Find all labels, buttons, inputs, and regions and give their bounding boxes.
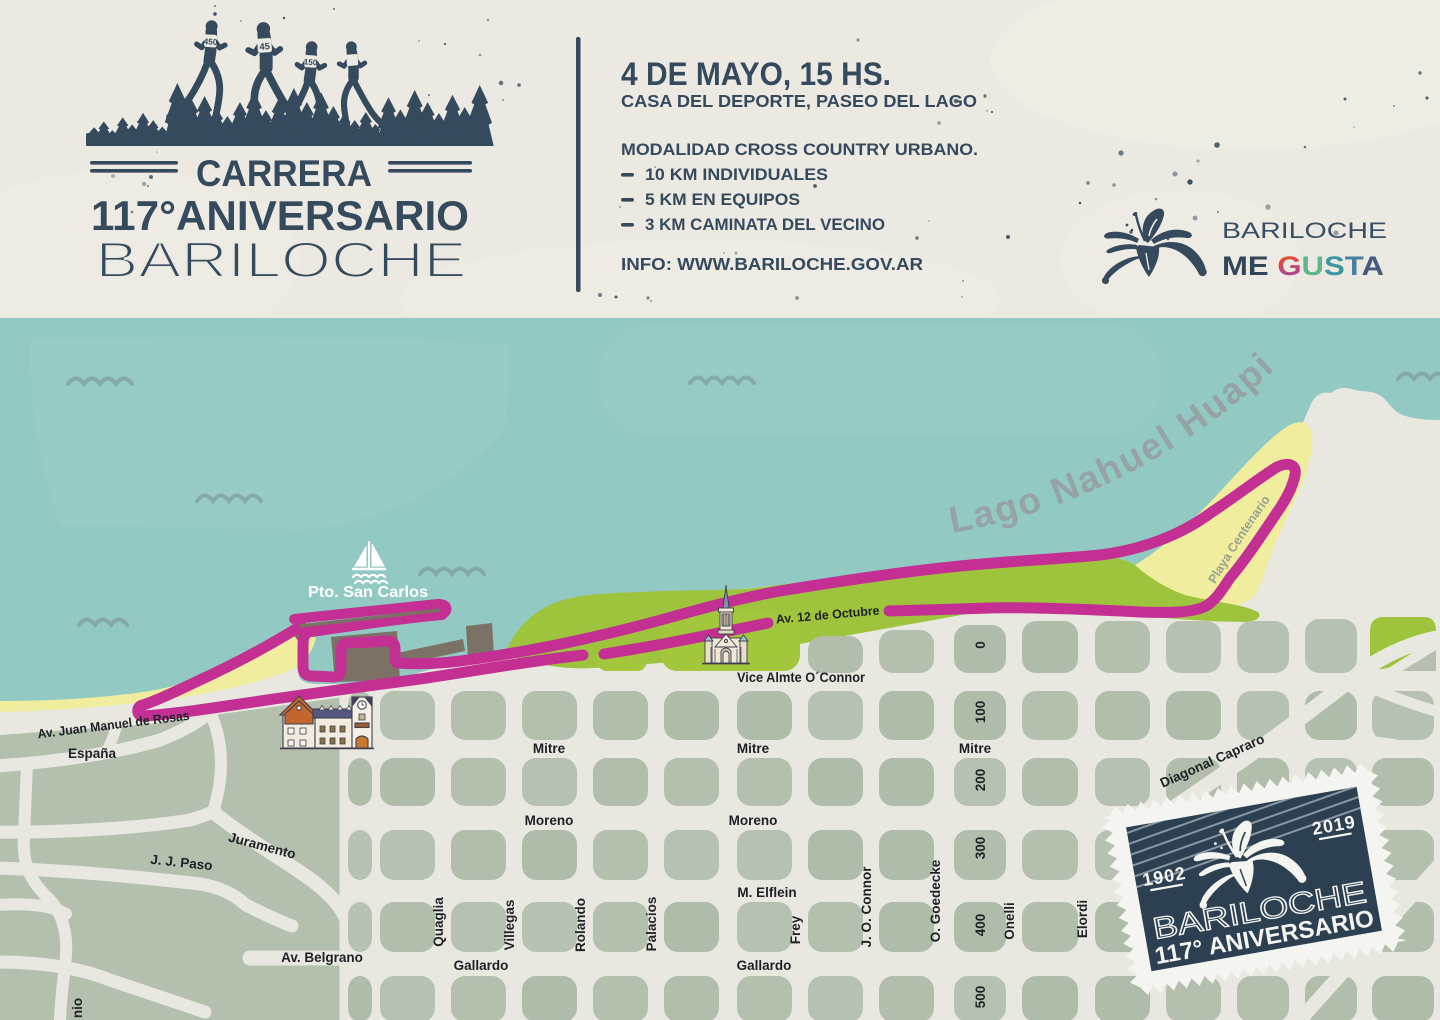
svg-text:500: 500 — [973, 986, 988, 1009]
svg-text:300: 300 — [973, 837, 988, 860]
svg-text:Rolando: Rolando — [573, 898, 588, 952]
svg-text:4 DE MAYO, 15 HS.: 4 DE MAYO, 15 HS. — [621, 56, 891, 92]
svg-text:0: 0 — [973, 641, 988, 649]
svg-text:150: 150 — [303, 57, 318, 67]
svg-text:Mitre: Mitre — [533, 741, 566, 756]
svg-text:España: España — [68, 746, 117, 761]
svg-text:Palacios: Palacios — [644, 897, 659, 952]
svg-text:nio: nio — [70, 998, 85, 1018]
svg-text:Mitre: Mitre — [737, 741, 770, 756]
svg-text:3 KM CAMINATA DEL VECINO: 3 KM CAMINATA DEL VECINO — [645, 215, 885, 234]
svg-text:Moreno: Moreno — [729, 813, 778, 828]
svg-text:Gallardo: Gallardo — [454, 958, 509, 973]
svg-text:INFO: WWW.BARILOCHE.GOV.AR: INFO: WWW.BARILOCHE.GOV.AR — [621, 254, 923, 274]
svg-text:Moreno: Moreno — [525, 813, 574, 828]
svg-text:200: 200 — [973, 769, 988, 792]
svg-text:ME GUSTA: ME GUSTA — [1222, 251, 1384, 281]
svg-text:Onelli: Onelli — [1002, 902, 1017, 940]
svg-text:Av. Belgrano: Av. Belgrano — [281, 950, 363, 965]
svg-text:100: 100 — [973, 701, 988, 724]
svg-text:Pto. San Carlos: Pto. San Carlos — [308, 584, 428, 601]
svg-text:CARRERA: CARRERA — [196, 153, 372, 194]
svg-text:CASA DEL DEPORTE, PASEO DEL LA: CASA DEL DEPORTE, PASEO DEL LAGO — [621, 91, 977, 111]
svg-text:Mitre: Mitre — [959, 741, 992, 756]
svg-text:Frey: Frey — [788, 915, 803, 944]
svg-text:Elordi: Elordi — [1075, 900, 1090, 938]
svg-text:BARILOCHE: BARILOCHE — [1222, 218, 1387, 243]
svg-text:Quaglia: Quaglia — [431, 897, 446, 947]
svg-text:400: 400 — [973, 914, 988, 937]
svg-text:J. O. Connor: J. O. Connor — [859, 866, 874, 948]
svg-text:450: 450 — [203, 36, 218, 47]
svg-text:O. Goedecke: O. Goedecke — [928, 859, 943, 942]
svg-text:5 KM EN EQUIPOS: 5 KM EN EQUIPOS — [645, 190, 800, 209]
svg-text:Vice Almte O´Connor: Vice Almte O´Connor — [737, 669, 865, 685]
svg-text:Villegas: Villegas — [502, 900, 517, 951]
svg-text:MODALIDAD CROSS COUNTRY URBANO: MODALIDAD CROSS COUNTRY URBANO. — [621, 140, 978, 159]
svg-text:10 KM INDIVIDUALES: 10 KM INDIVIDUALES — [645, 165, 828, 184]
svg-text:BARILOCHE: BARILOCHE — [96, 232, 467, 288]
svg-text:45: 45 — [259, 41, 270, 53]
svg-text:Gallardo: Gallardo — [737, 958, 792, 973]
svg-text:M. Elflein: M. Elflein — [737, 885, 796, 900]
